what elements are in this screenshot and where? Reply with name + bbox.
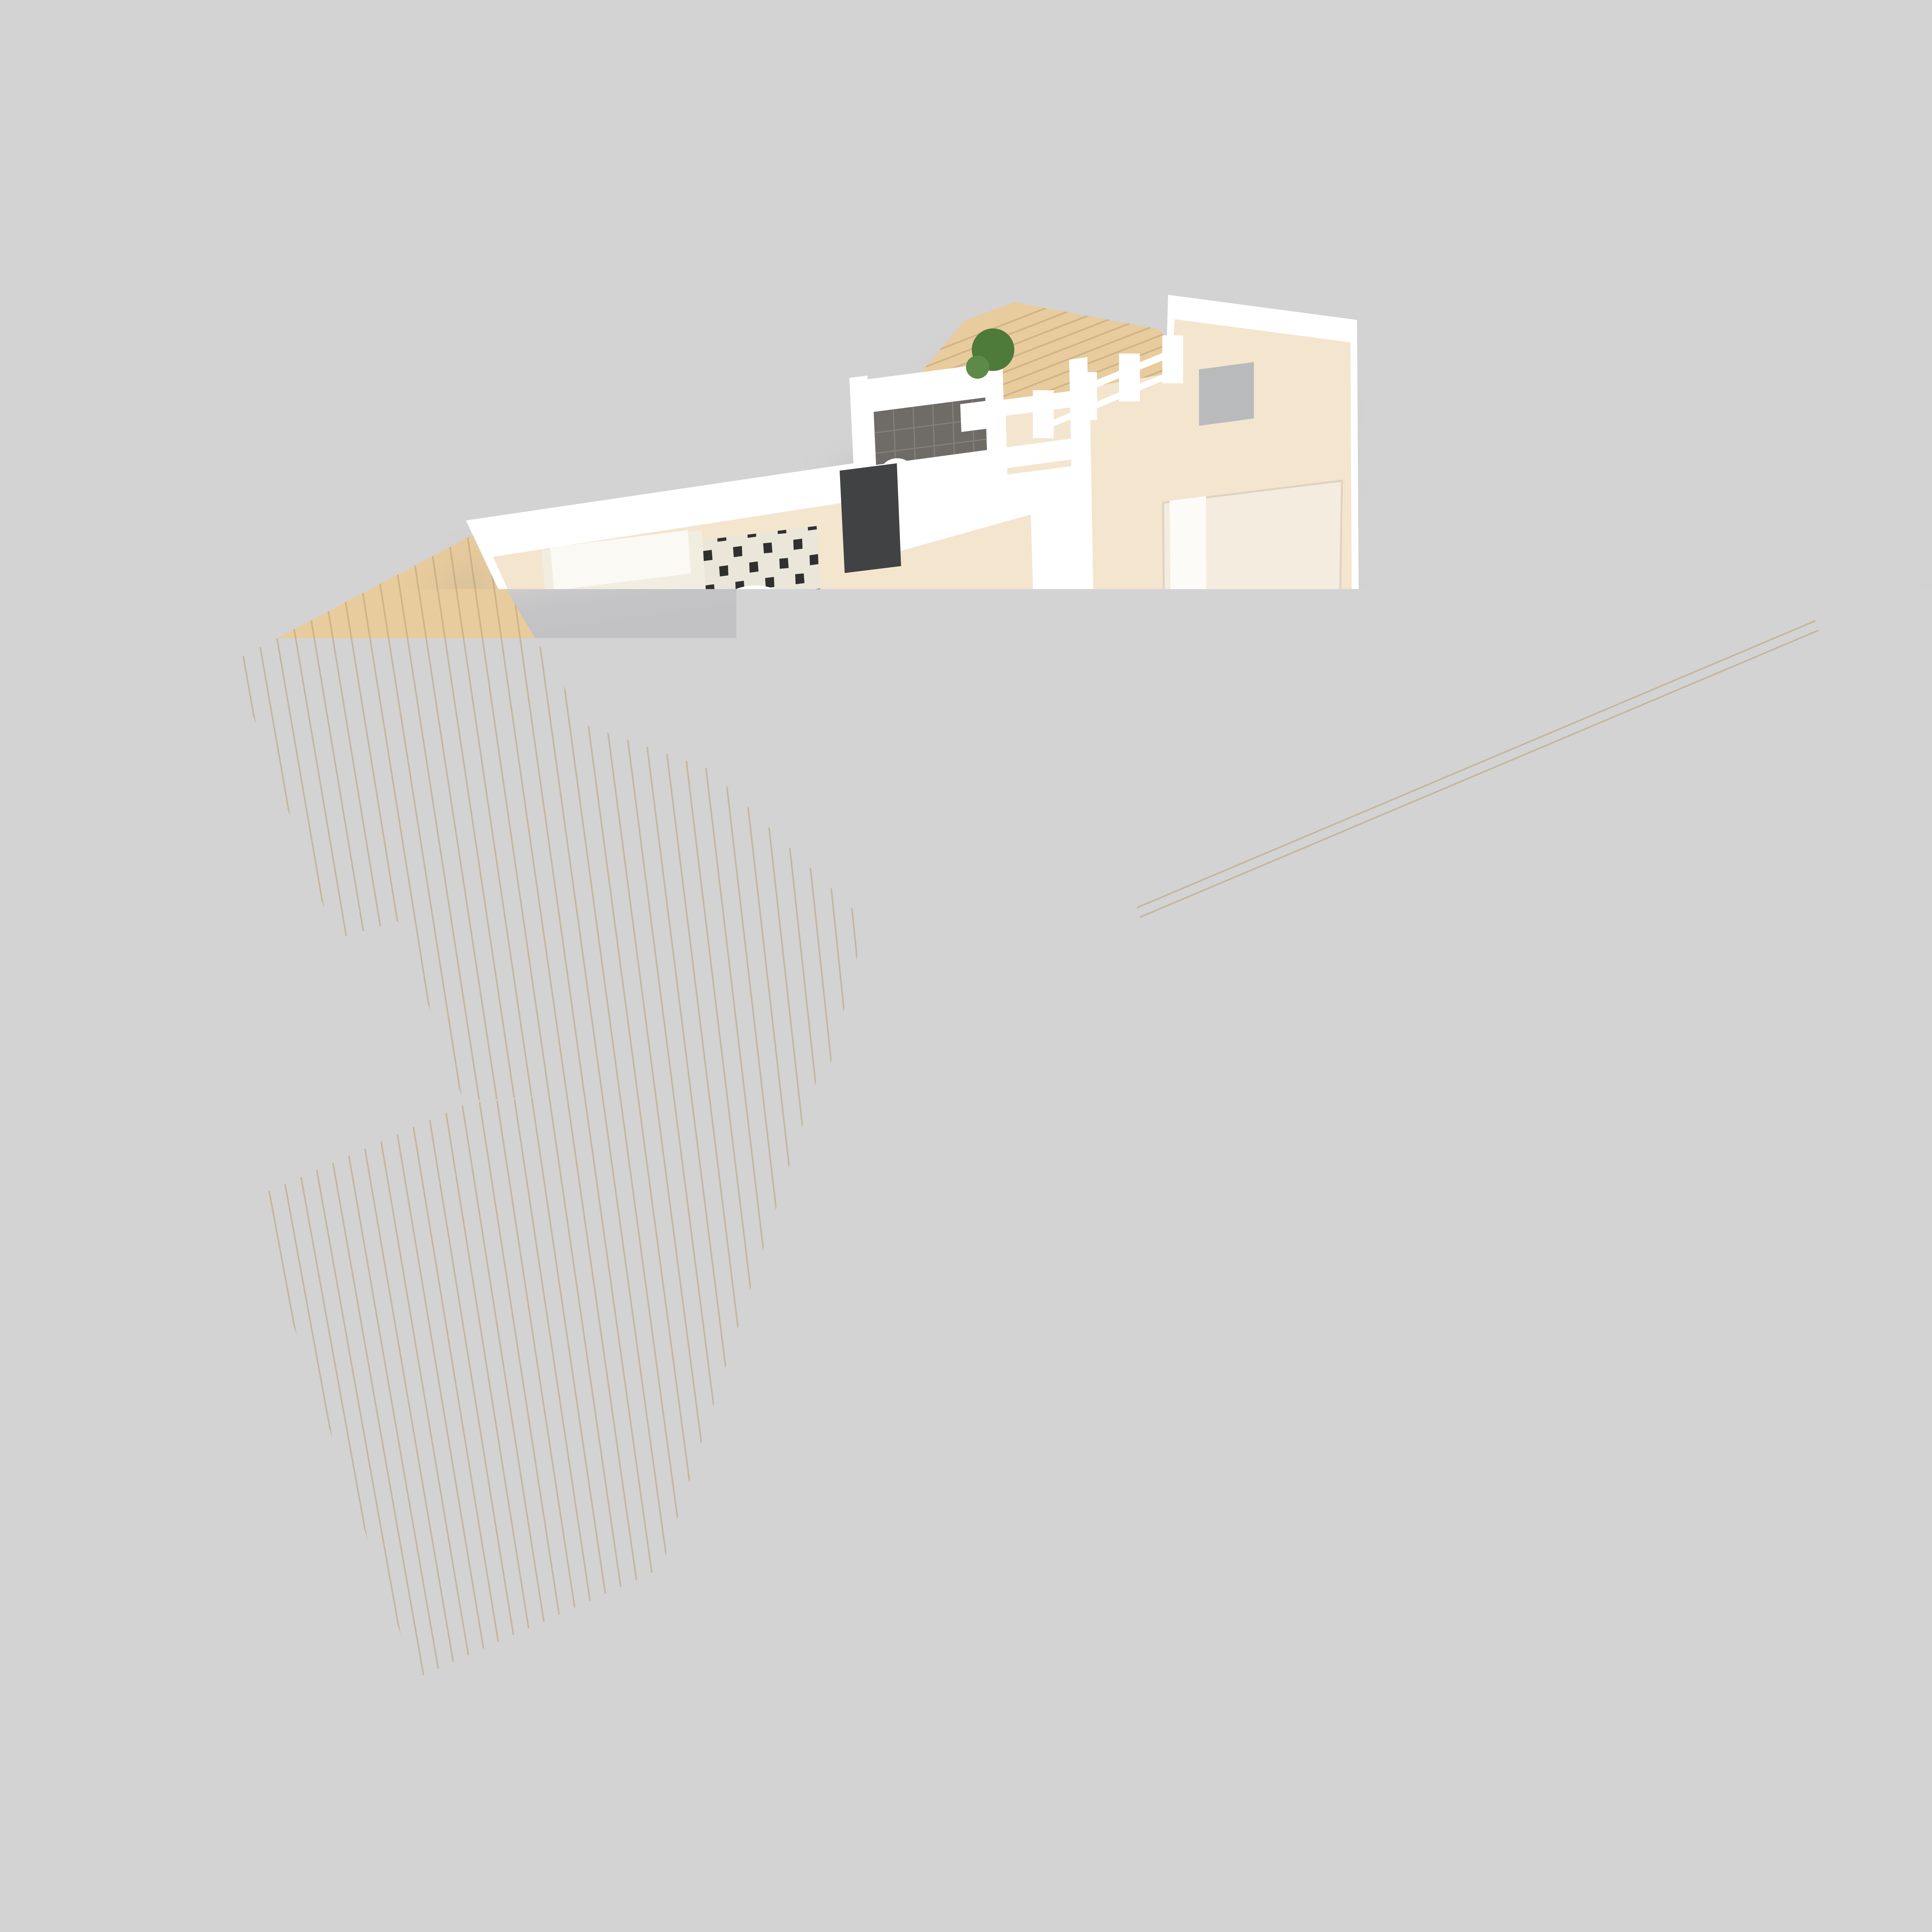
svg-text:3 Law Street: 3 Law Street (49, 1892, 364, 1932)
